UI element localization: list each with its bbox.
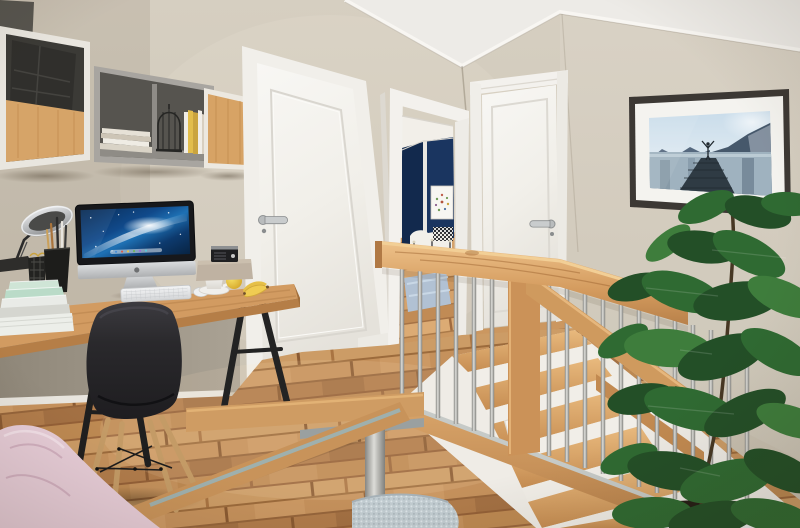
- vignette: [0, 0, 800, 528]
- interior-photo: [0, 0, 800, 528]
- scene-canvas: [0, 0, 800, 528]
